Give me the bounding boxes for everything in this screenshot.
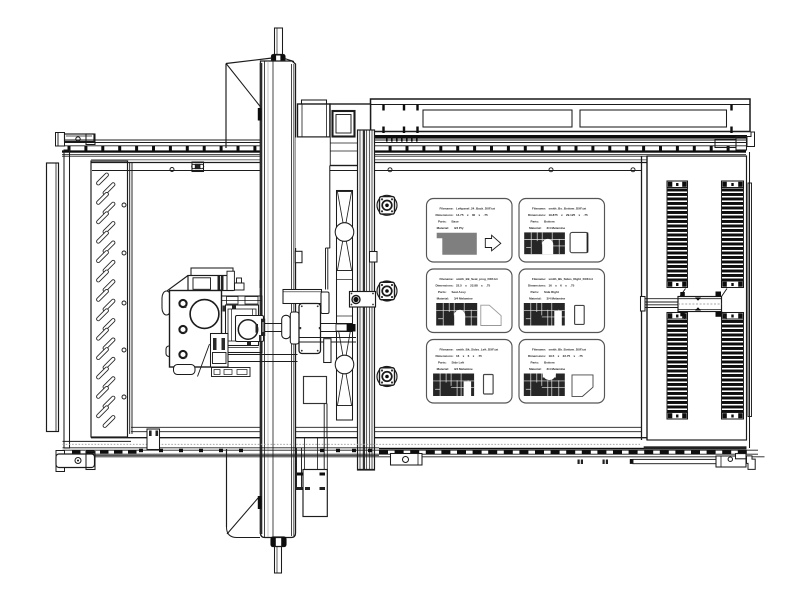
svg-text:19.875 x 29.125 x: 19.875 x 29.125 x .75 (549, 213, 589, 217)
svg-text:19.5 x 22.75 x .75: 19.5 x 22.75 x .75 (549, 354, 584, 358)
svg-text:Side Right: Side Right (544, 290, 559, 294)
svg-text:Parts:: Parts: (530, 290, 539, 294)
svg-text:Dimensions:: Dimensions: (435, 283, 453, 287)
svg-text:smith_Bo_Bottom_DXF.txt: smith_Bo_Bottom_DXF.txt (549, 206, 587, 210)
svg-text:22.5 x 22.88 x .75: 22.5 x 22.88 x .75 (456, 283, 491, 287)
svg-text:Leftpanel_24_Back_DXF.txt: Leftpanel_24_Back_DXF.txt (456, 206, 495, 210)
svg-text:smith_Bk_Sides_Right_DXF.txt: smith_Bk_Sides_Right_DXF.txt (549, 277, 593, 281)
svg-text:3/4 Melamine: 3/4 Melamine (547, 226, 566, 230)
svg-text:smith_Bk_Seat_prog_DXF.txt: smith_Bk_Seat_prog_DXF.txt (456, 277, 498, 281)
svg-text:3/4 Melamine: 3/4 Melamine (547, 296, 566, 300)
svg-text:Filename:: Filename: (532, 206, 546, 210)
svg-text:Material:: Material: (529, 226, 541, 230)
svg-text:Dimensions:: Dimensions: (528, 213, 546, 217)
svg-text:Material:: Material: (437, 226, 449, 230)
svg-text:Material:: Material: (437, 296, 449, 300)
svg-text:Material:: Material: (529, 296, 541, 300)
svg-text:Parts:: Parts: (530, 219, 539, 223)
svg-text:16 x 6 x .75: 16 x 6 x .75 (456, 354, 482, 358)
svg-text:Side Left: Side Left (452, 360, 465, 364)
svg-text:3/4 Melamine: 3/4 Melamine (454, 296, 473, 300)
svg-text:Material:: Material: (437, 367, 449, 371)
svg-text:Parts:: Parts: (438, 360, 447, 364)
svg-text:Filename:: Filename: (532, 347, 546, 351)
svg-text:Material:: Material: (529, 367, 541, 371)
svg-text:smith_Bk_Bottom_DXF.txt: smith_Bk_Bottom_DXF.txt (549, 347, 587, 351)
svg-text:Filename:: Filename: (439, 347, 453, 351)
svg-text:Dimensions:: Dimensions: (528, 283, 546, 287)
svg-text:Parts:: Parts: (438, 219, 447, 223)
svg-text:Filename:: Filename: (439, 206, 453, 210)
svg-text:3/4 Melamine: 3/4 Melamine (547, 367, 566, 371)
svg-text:Bottom: Bottom (544, 219, 555, 223)
svg-text:smith_Bk_Sides_Left_DXF.txt: smith_Bk_Sides_Left_DXF.txt (456, 347, 498, 351)
svg-text:Bottom: Bottom (544, 360, 555, 364)
svg-text:Dimensions:: Dimensions: (528, 354, 546, 358)
svg-text:3/4 Ply: 3/4 Ply (454, 226, 464, 230)
svg-text:Base: Base (452, 219, 460, 223)
svg-text:Seat Assy: Seat Assy (452, 290, 467, 294)
svg-text:3/4 Melamine: 3/4 Melamine (454, 367, 473, 371)
svg-text:Parts:: Parts: (530, 360, 539, 364)
svg-text:16 x 6 x .75: 16 x 6 x .75 (549, 283, 575, 287)
svg-text:Dimensions:: Dimensions: (435, 213, 453, 217)
svg-text:Parts:: Parts: (438, 290, 447, 294)
svg-text:14.75 x 30 x .75: 14.75 x 30 x .75 (456, 213, 488, 217)
svg-text:Dimensions:: Dimensions: (435, 354, 453, 358)
svg-text:Filename:: Filename: (532, 277, 546, 281)
svg-text:Filename:: Filename: (439, 277, 453, 281)
